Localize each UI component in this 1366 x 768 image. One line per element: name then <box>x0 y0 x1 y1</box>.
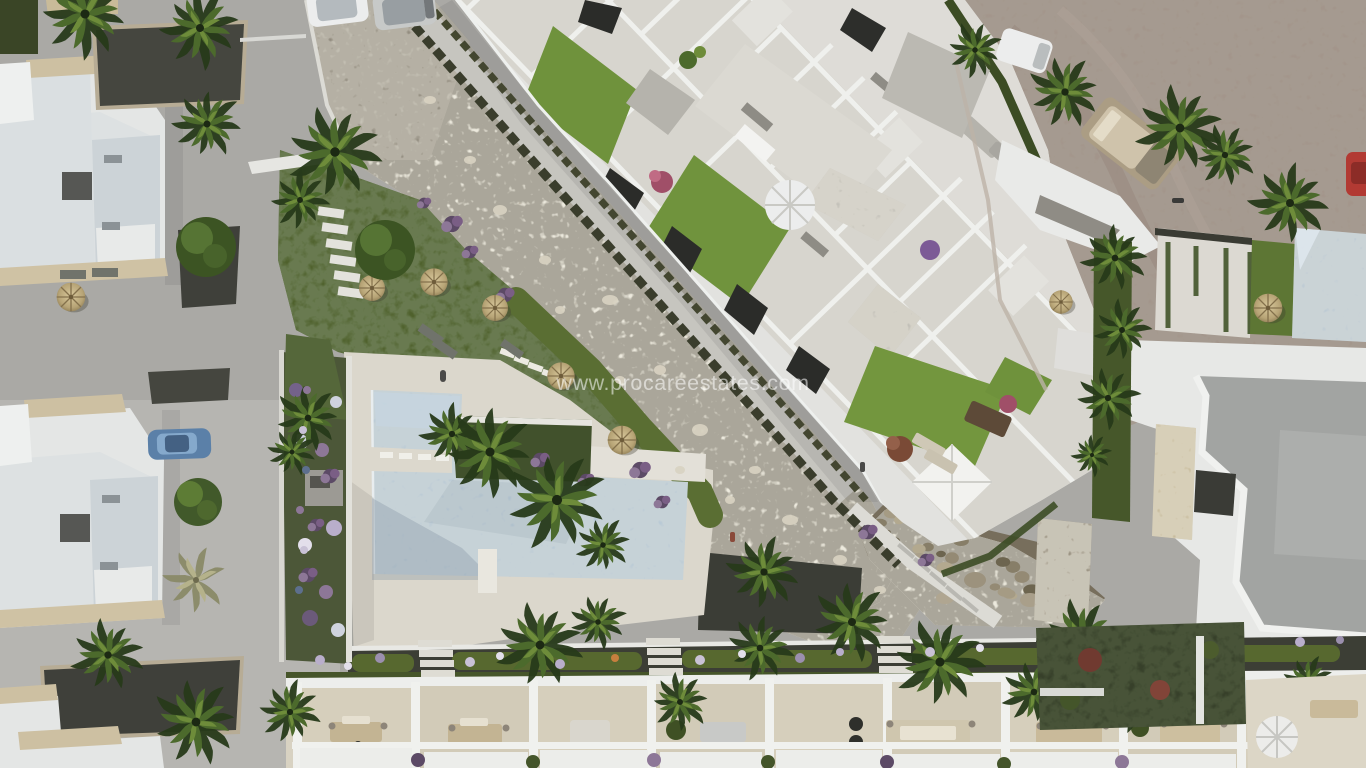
svg-text:www.procareestates.com: www.procareestates.com <box>555 371 809 395</box>
